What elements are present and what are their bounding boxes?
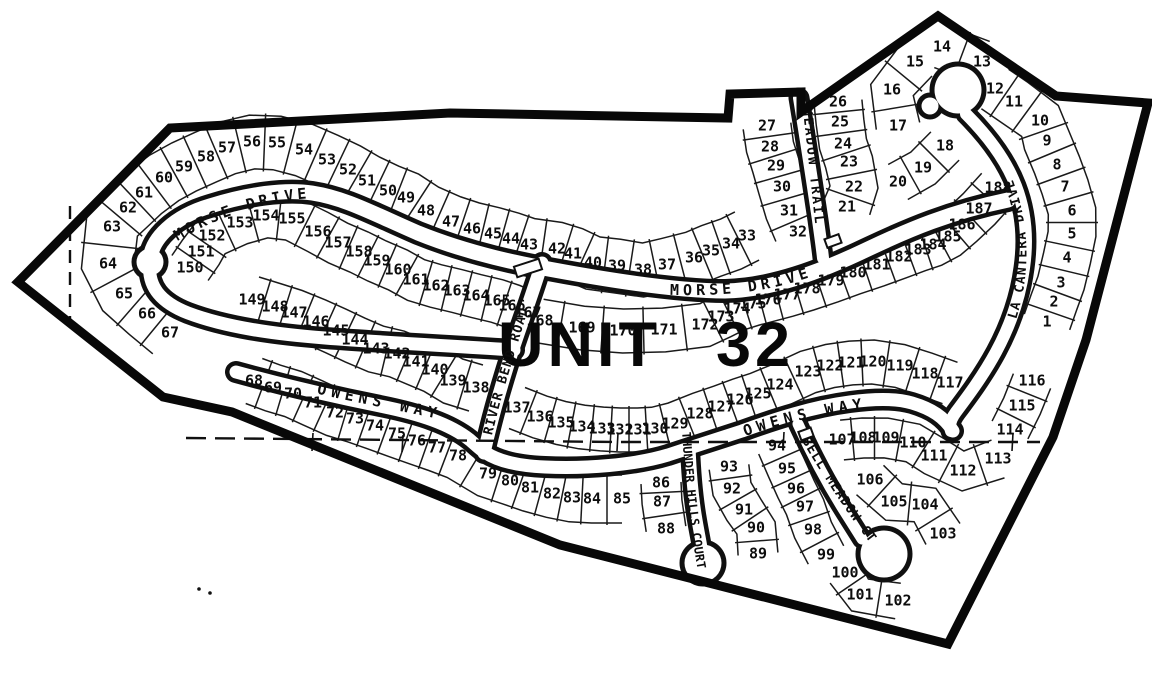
lot-22-label: 22 xyxy=(845,178,863,196)
lot-81-label: 81 xyxy=(521,479,539,497)
unit-title-number: 32 xyxy=(716,310,794,380)
lot-63-label: 63 xyxy=(103,218,121,236)
lot-9-label: 9 xyxy=(1042,132,1051,150)
lot-60-label: 60 xyxy=(155,169,173,187)
lot-7-label: 7 xyxy=(1060,178,1069,196)
lot-row-front-line xyxy=(641,484,646,532)
lot-12-label: 12 xyxy=(986,80,1004,98)
lot-78-label: 78 xyxy=(449,447,467,465)
lot-15-label: 15 xyxy=(906,53,924,71)
lot-46-label: 46 xyxy=(463,220,481,238)
lot-90-label: 90 xyxy=(747,519,765,537)
lot-43-label: 43 xyxy=(520,236,538,254)
lot-50-label: 50 xyxy=(379,182,397,200)
lot-24-label: 24 xyxy=(834,135,852,153)
lot-5-label: 5 xyxy=(1067,225,1076,243)
lot-11-label: 11 xyxy=(1005,93,1023,111)
lot-21-label: 21 xyxy=(838,198,856,216)
lot-186-label: 186 xyxy=(948,216,975,234)
lot-44-label: 44 xyxy=(502,230,520,248)
lot-151-label: 151 xyxy=(187,243,214,261)
lot-divider-line xyxy=(81,242,139,248)
lot-86-label: 86 xyxy=(652,474,670,492)
lot-20-label: 20 xyxy=(889,173,907,191)
lot-35-label: 35 xyxy=(702,242,720,260)
lot-4-label: 4 xyxy=(1062,249,1071,267)
lot-98-label: 98 xyxy=(804,521,822,539)
lot-96-label: 96 xyxy=(787,480,805,498)
lot-111-label: 111 xyxy=(920,447,947,465)
lot-115-label: 115 xyxy=(1008,397,1035,415)
lot-1-label: 1 xyxy=(1042,313,1051,331)
lot-73-label: 73 xyxy=(346,410,364,428)
lot-84-label: 84 xyxy=(583,490,601,508)
lot-16-label: 16 xyxy=(883,81,901,99)
lot-divider-line xyxy=(642,512,686,518)
lot-155-label: 155 xyxy=(278,210,305,228)
lot-38-label: 38 xyxy=(634,261,652,279)
culdesac-bulb-surface xyxy=(137,249,164,276)
lot-58-label: 58 xyxy=(197,148,215,166)
lot-187-label: 187 xyxy=(965,200,992,218)
lot-91-label: 91 xyxy=(735,501,753,519)
lot-52-label: 52 xyxy=(339,161,357,179)
lot-36-label: 36 xyxy=(685,249,703,267)
lot-65-label: 65 xyxy=(115,285,133,303)
lot-116-label: 116 xyxy=(1018,372,1045,390)
lot-83-label: 83 xyxy=(563,489,581,507)
lot-8-label: 8 xyxy=(1052,156,1061,174)
lot-66-label: 66 xyxy=(138,305,156,323)
lot-67-label: 67 xyxy=(161,324,179,342)
lot-104-label: 104 xyxy=(911,496,938,514)
lot-39-label: 39 xyxy=(608,257,626,275)
lot-42-label: 42 xyxy=(548,240,566,258)
lot-48-label: 48 xyxy=(417,202,435,220)
culdesac-bulb-surface xyxy=(922,98,939,115)
lot-divider-line xyxy=(735,539,779,542)
lot-85-label: 85 xyxy=(613,490,631,508)
lot-64-label: 64 xyxy=(99,255,117,273)
lot-40-label: 40 xyxy=(584,254,602,272)
lot-34-label: 34 xyxy=(722,235,740,253)
lot-59-label: 59 xyxy=(175,158,193,176)
lot-56-label: 56 xyxy=(243,133,261,151)
lot-114-label: 114 xyxy=(996,421,1023,439)
lot-87-label: 87 xyxy=(653,493,671,511)
lot-37-label: 37 xyxy=(658,256,676,274)
lot-103-label: 103 xyxy=(929,525,956,543)
lot-54-label: 54 xyxy=(295,141,313,159)
lot-120-label: 120 xyxy=(859,353,886,371)
lot-14-label: 14 xyxy=(933,38,951,56)
lot-45-label: 45 xyxy=(484,225,502,243)
lot-10-label: 10 xyxy=(1031,112,1049,130)
lot-100-label: 100 xyxy=(831,564,858,582)
lot-55-label: 55 xyxy=(268,134,286,152)
lot-41-label: 41 xyxy=(564,245,582,263)
unit-title: UNIT 32 xyxy=(498,310,794,380)
lot-70-label: 70 xyxy=(284,385,302,403)
lot-31-label: 31 xyxy=(780,202,798,220)
lot-105-label: 105 xyxy=(880,493,907,511)
lot-106-label: 106 xyxy=(856,471,883,489)
lot-68-label: 68 xyxy=(245,372,263,390)
lot-72-label: 72 xyxy=(326,404,344,422)
lot-23-label: 23 xyxy=(840,153,858,171)
lot-51-label: 51 xyxy=(358,172,376,190)
lot-119-label: 119 xyxy=(886,357,913,375)
lot-88-label: 88 xyxy=(657,520,675,538)
lot-77-label: 77 xyxy=(428,439,446,457)
lot-61-label: 61 xyxy=(135,184,153,202)
lot-118-label: 118 xyxy=(911,365,938,383)
lot-92-label: 92 xyxy=(723,480,741,498)
lot-2-label: 2 xyxy=(1049,293,1058,311)
lot-95-label: 95 xyxy=(778,460,796,478)
lot-75-label: 75 xyxy=(388,425,406,443)
lot-row-front-line xyxy=(862,100,878,215)
lot-76-label: 76 xyxy=(408,432,426,450)
lot-89-label: 89 xyxy=(749,545,767,563)
lot-47-label: 47 xyxy=(442,213,460,231)
lot-divider-line xyxy=(682,304,688,352)
lot-97-label: 97 xyxy=(796,498,814,516)
lot-divider-line xyxy=(871,104,918,112)
lot-150-label: 150 xyxy=(176,259,203,277)
lot-divider-line xyxy=(876,578,882,618)
lot-28-label: 28 xyxy=(761,138,779,156)
lot-99-label: 99 xyxy=(817,546,835,564)
lot-25-label: 25 xyxy=(831,113,849,131)
lot-79-label: 79 xyxy=(479,465,497,483)
map-dot xyxy=(208,591,212,595)
lot-17-label: 17 xyxy=(889,117,907,135)
lot-93-label: 93 xyxy=(720,458,738,476)
lot-3-label: 3 xyxy=(1056,274,1065,292)
lot-82-label: 82 xyxy=(543,485,561,503)
map-dot xyxy=(197,587,201,591)
lot-30-label: 30 xyxy=(773,178,791,196)
lot-29-label: 29 xyxy=(767,157,785,175)
lot-33-label: 33 xyxy=(738,227,756,245)
lot-18-label: 18 xyxy=(936,137,954,155)
lot-117-label: 117 xyxy=(936,374,963,392)
lot-102-label: 102 xyxy=(884,592,911,610)
lot-19-label: 19 xyxy=(914,159,932,177)
lot-113-label: 113 xyxy=(984,450,1011,468)
lot-138-label: 138 xyxy=(462,379,489,397)
lot-74-label: 74 xyxy=(366,417,384,435)
lot-6-label: 6 xyxy=(1067,202,1076,220)
plat-map-page: 3334353637383940414243444546474849505152… xyxy=(0,0,1152,696)
lot-27-label: 27 xyxy=(758,117,776,135)
lot-94-label: 94 xyxy=(768,437,786,455)
plat-map: 3334353637383940414243444546474849505152… xyxy=(0,0,1152,696)
lot-112-label: 112 xyxy=(949,462,976,480)
lot-49-label: 49 xyxy=(397,189,415,207)
lot-80-label: 80 xyxy=(501,472,519,490)
lot-53-label: 53 xyxy=(318,151,336,169)
lot-109-label: 109 xyxy=(872,429,899,447)
lot-101-label: 101 xyxy=(846,586,873,604)
lot-129-label: 129 xyxy=(661,415,688,433)
lot-62-label: 62 xyxy=(119,199,137,217)
culdesac-bulb-surface xyxy=(935,67,982,114)
lot-32-label: 32 xyxy=(789,223,807,241)
lot-57-label: 57 xyxy=(218,139,236,157)
lot-69-label: 69 xyxy=(264,379,282,397)
